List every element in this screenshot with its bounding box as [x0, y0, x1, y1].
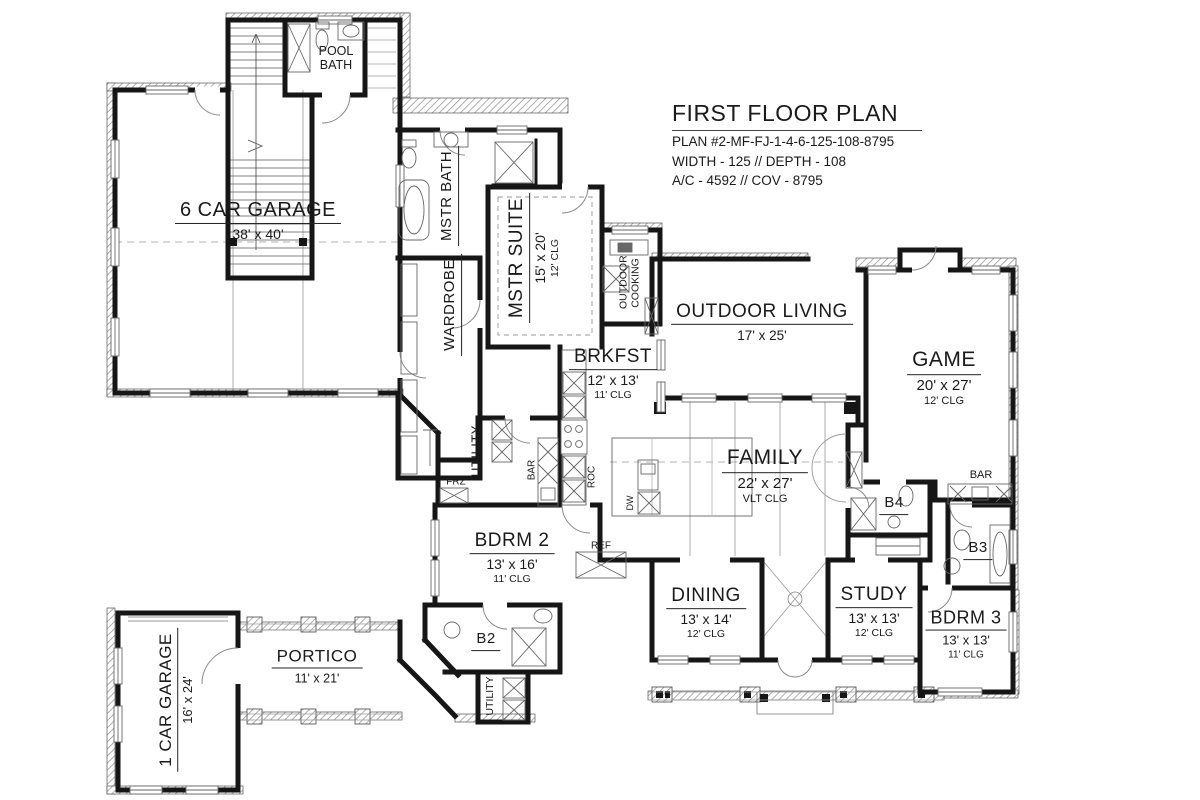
label-ref: REF	[591, 540, 611, 551]
appliance-label: BAR	[526, 460, 537, 481]
room-label-mstr-bath: MSTR BATH	[439, 146, 459, 246]
room-name: GAME	[907, 348, 981, 375]
room-name: STUDY	[836, 584, 913, 608]
room-dims: 13' x 13'	[836, 611, 913, 627]
room-name: BDRM 2	[470, 530, 555, 554]
room-ceiling: 11' CLG	[569, 390, 657, 402]
room-label-b2: B2	[471, 631, 500, 651]
room-label-utility: UTILITY	[470, 425, 485, 477]
room-name: OUTDOOR COOKING	[617, 255, 641, 309]
room-name: MSTR BATH	[439, 146, 459, 246]
room-dims: 16' x 24'	[181, 628, 196, 772]
room-name: B4	[879, 495, 908, 515]
room-dims: 17' x 25'	[671, 328, 853, 343]
room-label-pool-bath: POOL BATH	[313, 44, 359, 72]
room-dims: 13' x 13'	[925, 634, 1006, 649]
room-name: DINING	[666, 585, 746, 609]
room-label-mstr-suite: MSTR SUITE 15' x 20' 12' CLG	[506, 193, 562, 323]
appliance-label: BAR	[970, 469, 993, 481]
room-label-bdrm3: BDRM 3 13' x 13' 11' CLG	[925, 608, 1006, 661]
room-name: B2	[471, 631, 500, 651]
appliance-label: ROC	[586, 466, 597, 488]
room-label-outdoor-cooking: OUTDOOR COOKING	[618, 257, 642, 309]
room-name: UTILITY	[484, 676, 496, 715]
appliance-label: FRZ	[446, 476, 465, 487]
room-name: 6 CAR GARAGE	[175, 199, 341, 224]
page-title: FIRST FLOOR PLAN	[672, 100, 922, 131]
plan-number: PLAN #2-MF-FJ-1-4-6-125-108-8795	[672, 133, 922, 151]
room-ceiling: 11' CLG	[925, 649, 1006, 660]
room-dims: 13' x 14'	[666, 612, 746, 628]
plan-area: A/C - 4592 // COV - 8795	[672, 172, 922, 190]
room-label-dining: DINING 13' x 14' 12' CLG	[666, 585, 746, 641]
room-name: UTILITY	[470, 425, 485, 477]
room-dims: 15' x 20'	[533, 193, 549, 323]
room-ceiling: 12' CLG	[666, 629, 746, 641]
label-roc: ROC	[586, 466, 597, 488]
room-dims: 12' x 13'	[569, 373, 657, 389]
room-label-brkfst: BRKFST 12' x 13' 11' CLG	[569, 346, 657, 402]
room-name: BDRM 3	[925, 608, 1006, 631]
room-label-game: GAME 20' x 27' 12' CLG	[907, 348, 981, 408]
room-label-portico: PORTICO 11' x 21'	[272, 646, 363, 685]
room-dims: 20' x 27'	[907, 378, 981, 395]
room-dims: 13' x 16'	[470, 557, 555, 573]
room-ceiling: 12' CLG	[836, 628, 913, 640]
room-label-1-car-garage: 1 CAR GARAGE 16' x 24'	[156, 628, 196, 772]
plan-size: WIDTH - 125 // DEPTH - 108	[672, 153, 922, 171]
room-name: B3	[963, 540, 992, 560]
room-ceiling: 12' CLG	[907, 396, 981, 408]
room-label-utility2: UTILITY	[485, 676, 497, 715]
room-label-6-car-garage: 6 CAR GARAGE 38' x 40'	[175, 199, 341, 243]
room-label-wardrobe: WARDROBE	[442, 254, 462, 356]
room-dims: 22' x 27'	[722, 476, 808, 493]
floor-plan-page: 6 CAR GARAGE 38' x 40' POOL BATH MSTR BA…	[0, 0, 1200, 800]
room-label-b4: B4	[879, 495, 908, 515]
label-dw: DW	[625, 496, 635, 511]
room-name: BRKFST	[569, 346, 657, 370]
appliance-label: DW	[625, 496, 635, 511]
room-label-study: STUDY 13' x 13' 12' CLG	[836, 584, 913, 640]
room-ceiling: VLT CLG	[722, 494, 808, 506]
room-name: PORTICO	[272, 646, 363, 668]
room-ceiling: 12' CLG	[550, 193, 562, 323]
room-ceiling: 11' CLG	[470, 574, 555, 586]
room-name: POOL BATH	[319, 44, 354, 72]
room-name: FAMILY	[722, 446, 808, 473]
room-dims: 38' x 40'	[175, 227, 341, 243]
label-bar-game: BAR	[970, 469, 993, 481]
room-name: MSTR SUITE	[506, 193, 530, 323]
room-label-outdoor-living: OUTDOOR LIVING 17' x 25'	[671, 301, 853, 343]
room-name: WARDROBE	[442, 254, 462, 356]
room-label-family: FAMILY 22' x 27' VLT CLG	[722, 446, 808, 506]
title-block: FIRST FLOOR PLAN PLAN #2-MF-FJ-1-4-6-125…	[672, 100, 922, 190]
room-label-b3: B3	[963, 540, 992, 560]
appliance-label: REF	[591, 540, 611, 551]
room-name: 1 CAR GARAGE	[156, 628, 178, 772]
room-label-bdrm2: BDRM 2 13' x 16' 11' CLG	[470, 530, 555, 586]
label-frz: FRZ	[446, 476, 465, 487]
room-dims: 11' x 21'	[272, 672, 363, 686]
room-name: OUTDOOR LIVING	[671, 301, 853, 325]
label-bar-kitchen: BAR	[526, 460, 537, 481]
